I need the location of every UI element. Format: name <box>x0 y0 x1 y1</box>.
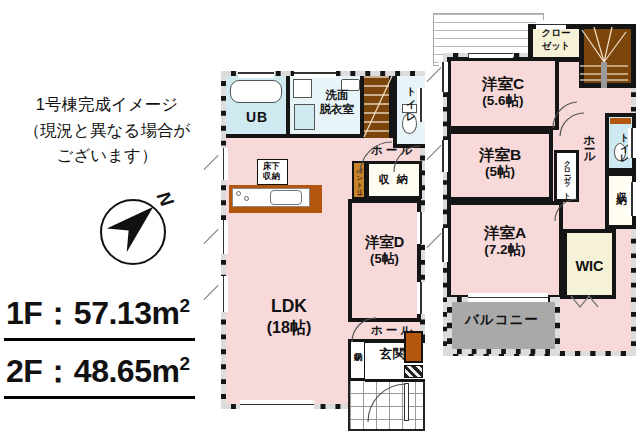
area-1f-colon: ： <box>42 295 74 331</box>
area-1f: 1F：57.13m2 <box>4 292 195 341</box>
compass-north-label: N <box>152 188 178 210</box>
1f-door-swing-lines <box>221 71 425 431</box>
area-2f-unit: m <box>151 353 179 389</box>
area-2f-colon: ： <box>42 353 74 389</box>
2f-door-swing-lines <box>443 24 640 359</box>
area-1f-value: 57.13 <box>74 295 152 331</box>
disclaimer-line3: ございます） <box>6 143 208 169</box>
area-2f-value: 48.65 <box>74 353 152 389</box>
disclaimer-line1: 1号棟完成イメージ <box>6 92 208 118</box>
floor-plan-page: 1号棟完成イメージ （現況と異なる場合が ございます） N 1F：57.13m2… <box>0 0 640 433</box>
dimension-tick <box>204 229 219 244</box>
area-2f-label: 2F <box>6 353 42 389</box>
area-1f-label: 1F <box>6 295 42 331</box>
area-2f-unit-sup: 2 <box>179 353 189 374</box>
area-1f-unit-sup: 2 <box>179 295 189 316</box>
compass-icon <box>100 199 166 265</box>
area-1f-unit: m <box>151 295 179 331</box>
dimension-tick <box>204 285 219 300</box>
area-2f: 2F：48.65m2 <box>4 350 195 399</box>
disclaimer-note: 1号棟完成イメージ （現況と異なる場合が ございます） <box>6 92 208 169</box>
compass-arrow-icon <box>102 201 159 258</box>
disclaimer-line2: （現況と異なる場合が <box>6 118 208 144</box>
